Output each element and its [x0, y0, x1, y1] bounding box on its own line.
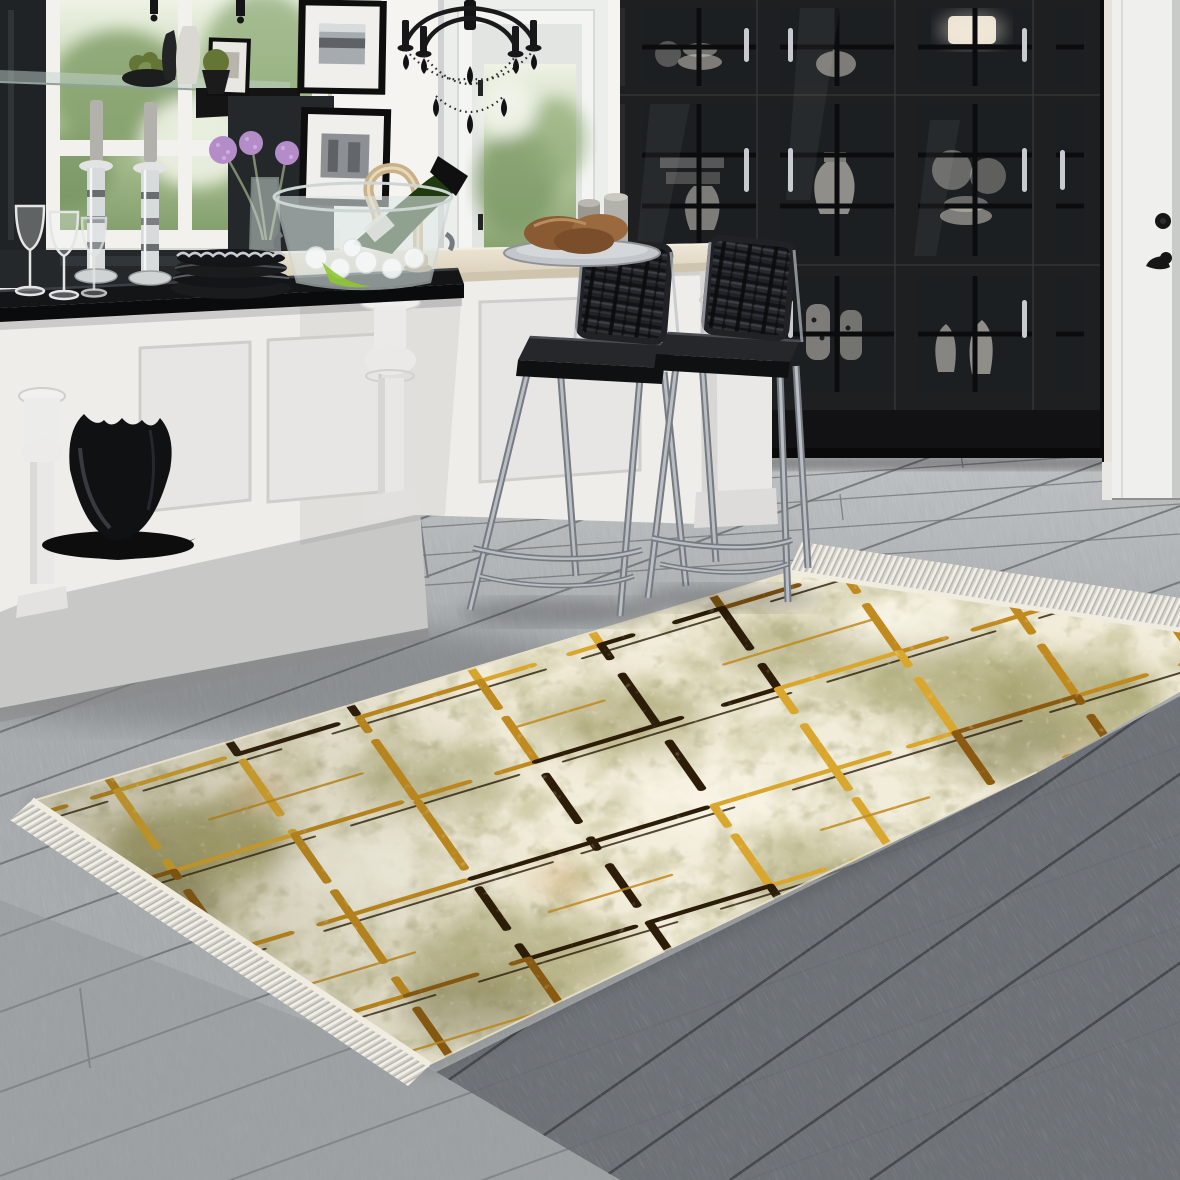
scene-canvas: [0, 0, 1180, 1180]
framed-art-bottom: [299, 107, 392, 207]
wavy-plate-stack: [171, 249, 291, 299]
stool-back: [702, 237, 802, 342]
mirror-reflection-streak: [8, 10, 14, 240]
kitchen-rug-photo: [0, 0, 1180, 1180]
framed-art-top: [297, 0, 387, 95]
white-vase: [176, 26, 200, 84]
backsplash-reflection: [60, 256, 180, 266]
stool-shadow: [460, 598, 660, 626]
stool-shadow: [635, 585, 825, 611]
door-hinge-bottom: [478, 214, 483, 230]
